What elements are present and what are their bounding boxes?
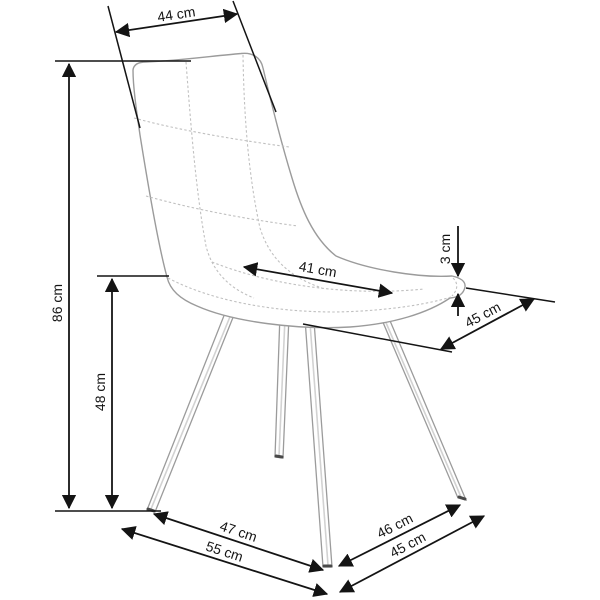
dim-overall-height-label: 86 cm (49, 284, 65, 322)
dim-seat-edge-label: 3 cm (437, 234, 453, 264)
dim-seat-height-label: 48 cm (92, 373, 108, 411)
chair-dimension-diagram: 44 cm 86 cm 48 cm 41 cm 3 cm 45 cm 47 cm… (0, 0, 600, 600)
foot-tip-rear-right (276, 456, 282, 457)
chair-body-fill (133, 53, 465, 327)
dim-leg-span-side-label: 47 cm (218, 518, 259, 545)
foot-tip-front-right (459, 497, 465, 499)
leg-shade-front-left (310, 323, 328, 565)
ext-seat-width-right (466, 288, 555, 302)
leg-shade-rear-left (151, 307, 234, 509)
chair (133, 53, 466, 567)
diagram-canvas: 44 cm 86 cm 48 cm 41 cm 3 cm 45 cm 47 cm… (0, 0, 600, 600)
ext-seat-width-left (303, 324, 452, 352)
